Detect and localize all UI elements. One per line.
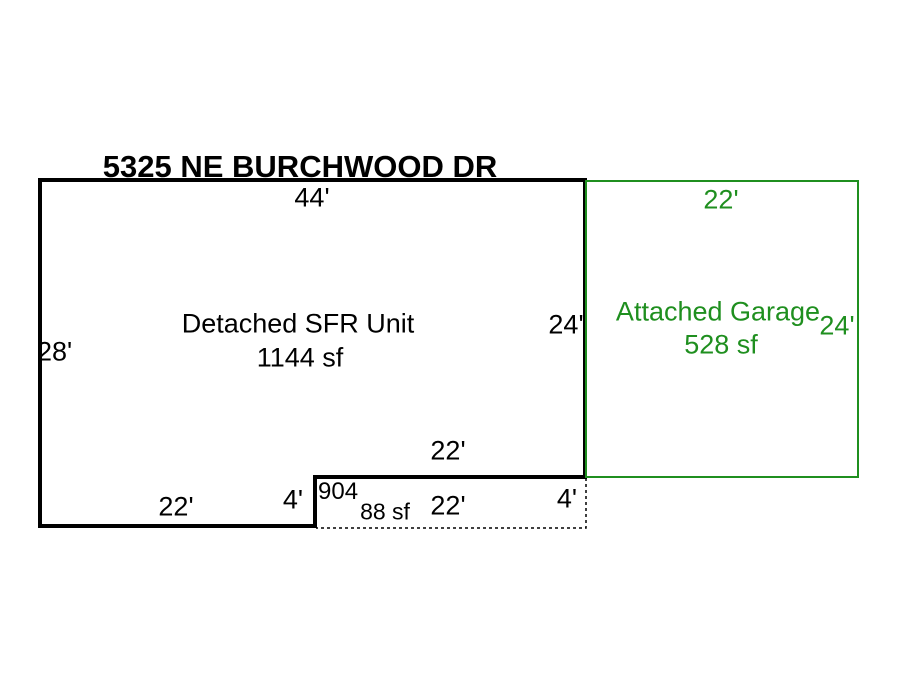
porch-width-dim: 22': [430, 493, 465, 520]
porch-height-dim: 4': [557, 486, 577, 513]
garage-area: 528 sf: [684, 332, 758, 359]
garage-right-dim: 24': [819, 313, 854, 340]
main-unit-step-top-dim: 22': [430, 438, 465, 465]
main-unit-area: 1144 sf: [257, 345, 344, 372]
main-unit-bottom-left-dim: 22': [158, 494, 193, 521]
main-unit-top-dim: 44': [294, 185, 329, 212]
sketch-lines: [0, 0, 900, 675]
porch-code: 904: [318, 480, 358, 504]
main-unit-right-dim: 24': [548, 312, 583, 339]
garage-top-dim: 22': [703, 187, 738, 214]
main-unit-step-height-dim: 4': [283, 487, 303, 514]
property-address-title: 5325 NE BURCHWOOD DR: [103, 151, 497, 182]
property-sketch: 5325 NE BURCHWOOD DR 44' 28' Detached SF…: [0, 0, 900, 675]
main-unit-left-dim: 28': [37, 339, 72, 366]
garage-label: Attached Garage: [616, 299, 820, 326]
main-unit-label: Detached SFR Unit: [182, 311, 415, 338]
porch-area: 88 sf: [360, 501, 410, 524]
